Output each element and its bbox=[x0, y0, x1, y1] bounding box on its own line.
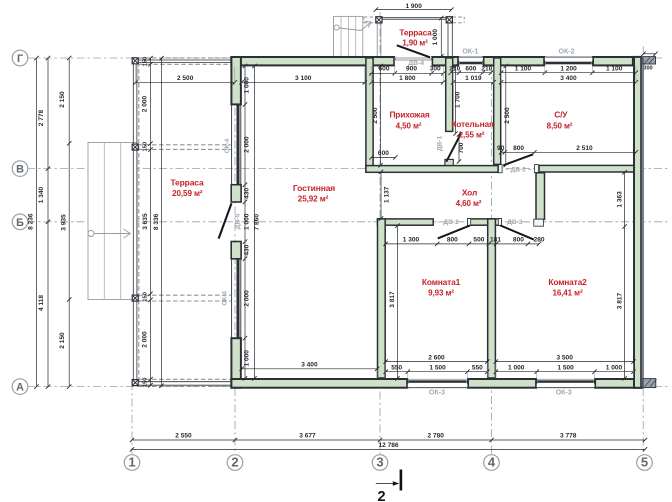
svg-text:2 150: 2 150 bbox=[59, 332, 66, 349]
svg-text:Терраса: Терраса bbox=[399, 28, 432, 38]
svg-text:4,50 м²: 4,50 м² bbox=[396, 121, 422, 130]
svg-text:2 780: 2 780 bbox=[428, 432, 445, 439]
svg-text:4: 4 bbox=[488, 455, 496, 470]
svg-text:1 363: 1 363 bbox=[616, 191, 623, 208]
svg-text:800: 800 bbox=[513, 237, 524, 244]
svg-text:1 500: 1 500 bbox=[429, 364, 446, 371]
svg-text:500: 500 bbox=[473, 237, 484, 244]
svg-text:2 500: 2 500 bbox=[177, 75, 194, 82]
svg-text:1 100: 1 100 bbox=[515, 66, 532, 73]
svg-text:20,59 м²: 20,59 м² bbox=[172, 189, 203, 198]
svg-text:8 336: 8 336 bbox=[153, 213, 160, 230]
svg-text:2 500: 2 500 bbox=[372, 107, 379, 124]
svg-text:150: 150 bbox=[143, 142, 149, 152]
svg-text:550: 550 bbox=[391, 364, 402, 371]
svg-text:3 817: 3 817 bbox=[389, 291, 396, 308]
svg-text:3 778: 3 778 bbox=[560, 432, 577, 439]
svg-text:2 778: 2 778 bbox=[38, 109, 45, 126]
svg-text:2 000: 2 000 bbox=[142, 95, 149, 112]
svg-text:2 150: 2 150 bbox=[59, 91, 66, 108]
svg-text:Терраса: Терраса bbox=[170, 177, 204, 187]
svg-text:1 700: 1 700 bbox=[454, 91, 461, 108]
svg-text:Г: Г bbox=[17, 53, 23, 65]
svg-text:1 019: 1 019 bbox=[465, 75, 482, 82]
svg-text:1 000: 1 000 bbox=[606, 364, 623, 371]
svg-text:1 000: 1 000 bbox=[244, 350, 251, 367]
svg-text:1 200: 1 200 bbox=[560, 66, 577, 73]
svg-text:12 786: 12 786 bbox=[378, 442, 398, 449]
svg-text:Комната2: Комната2 bbox=[548, 277, 587, 287]
svg-text:2 000: 2 000 bbox=[244, 290, 251, 307]
svg-text:25,92 м²: 25,92 м² bbox=[298, 195, 329, 204]
svg-text:2 550: 2 550 bbox=[175, 432, 192, 439]
svg-text:3 677: 3 677 bbox=[299, 432, 316, 439]
svg-text:150: 150 bbox=[143, 57, 149, 67]
svg-text:В: В bbox=[16, 164, 24, 176]
svg-text:3 400: 3 400 bbox=[560, 75, 577, 82]
svg-text:3 100: 3 100 bbox=[295, 75, 312, 82]
svg-text:1 340: 1 340 bbox=[38, 186, 45, 203]
svg-text:150: 150 bbox=[143, 292, 149, 302]
svg-text:550: 550 bbox=[472, 364, 483, 371]
svg-text:700: 700 bbox=[458, 142, 465, 153]
svg-text:800: 800 bbox=[513, 145, 524, 152]
svg-text:Хол: Хол bbox=[462, 187, 477, 197]
svg-text:2,55 м²: 2,55 м² bbox=[459, 130, 485, 139]
svg-text:Гостинная: Гостинная bbox=[293, 183, 335, 193]
svg-text:ДВ-3: ДВ-3 bbox=[507, 219, 523, 226]
svg-text:1 137: 1 137 bbox=[383, 186, 390, 203]
svg-text:430: 430 bbox=[244, 188, 251, 199]
svg-text:ОК-3: ОК-3 bbox=[429, 389, 445, 396]
svg-text:1 500: 1 500 bbox=[557, 364, 574, 371]
svg-text:ДВ-2: ДВ-2 bbox=[511, 167, 527, 174]
svg-text:1 900: 1 900 bbox=[405, 3, 422, 10]
svg-text:5: 5 bbox=[641, 455, 648, 470]
svg-text:1: 1 bbox=[128, 455, 135, 470]
svg-text:1 000: 1 000 bbox=[432, 29, 439, 46]
svg-text:2 500: 2 500 bbox=[504, 107, 511, 124]
svg-text:800: 800 bbox=[447, 237, 458, 244]
svg-text:ДВ-2: ДВ-2 bbox=[443, 219, 459, 226]
svg-text:280: 280 bbox=[534, 237, 545, 244]
svg-text:Котельная: Котельная bbox=[451, 119, 494, 129]
svg-text:2 000: 2 000 bbox=[142, 331, 149, 348]
svg-text:181: 181 bbox=[490, 237, 501, 244]
svg-text:3: 3 bbox=[376, 455, 383, 470]
svg-text:8 236: 8 236 bbox=[27, 213, 34, 230]
svg-text:1 000: 1 000 bbox=[244, 77, 251, 94]
svg-text:300: 300 bbox=[643, 66, 652, 72]
svg-text:1 800: 1 800 bbox=[399, 75, 416, 82]
svg-text:Комната1: Комната1 bbox=[422, 277, 461, 287]
svg-text:3 400: 3 400 bbox=[301, 361, 318, 368]
svg-text:9,93 м²: 9,93 м² bbox=[428, 288, 454, 297]
svg-text:ОК-4: ОК-4 bbox=[224, 138, 231, 153]
svg-text:150: 150 bbox=[143, 377, 149, 387]
svg-text:ОК-3: ОК-3 bbox=[556, 389, 572, 396]
svg-text:430: 430 bbox=[244, 244, 251, 255]
svg-text:4 118: 4 118 bbox=[38, 295, 45, 311]
svg-text:ДВ-1: ДВ-1 bbox=[437, 136, 444, 152]
svg-text:7 860: 7 860 bbox=[253, 214, 260, 231]
svg-text:1 100: 1 100 bbox=[606, 66, 623, 73]
svg-text:16,41 м²: 16,41 м² bbox=[552, 288, 582, 297]
svg-text:8,50 м²: 8,50 м² bbox=[547, 121, 573, 130]
svg-text:3 500: 3 500 bbox=[556, 354, 573, 361]
svg-text:900: 900 bbox=[406, 66, 417, 73]
svg-text:А: А bbox=[16, 382, 24, 394]
svg-text:2 600: 2 600 bbox=[428, 354, 445, 361]
svg-text:С/У: С/У bbox=[554, 109, 568, 119]
svg-text:1 000: 1 000 bbox=[508, 364, 525, 371]
svg-text:600: 600 bbox=[465, 66, 476, 73]
svg-text:ОК-1: ОК-1 bbox=[462, 48, 478, 55]
svg-text:ОК-2: ОК-2 bbox=[559, 48, 575, 55]
svg-text:3 635: 3 635 bbox=[142, 213, 149, 230]
svg-text:3 935: 3 935 bbox=[61, 214, 68, 231]
svg-text:2: 2 bbox=[231, 455, 238, 470]
svg-text:4,60 м²: 4,60 м² bbox=[456, 199, 482, 208]
svg-text:ДВ-5: ДВ-5 bbox=[235, 213, 242, 229]
svg-text:3 817: 3 817 bbox=[616, 292, 623, 309]
svg-text:2 000: 2 000 bbox=[244, 136, 251, 153]
svg-text:2 510: 2 510 bbox=[576, 145, 593, 152]
svg-text:Б: Б bbox=[16, 217, 24, 229]
svg-text:1,90 м²: 1,90 м² bbox=[402, 39, 428, 48]
svg-text:90: 90 bbox=[497, 145, 505, 152]
svg-text:1 300: 1 300 bbox=[403, 237, 420, 244]
svg-text:1 000: 1 000 bbox=[244, 213, 251, 230]
svg-text:Прихожая: Прихожая bbox=[389, 109, 429, 119]
svg-text:2: 2 bbox=[377, 489, 385, 502]
svg-text:ОК-4: ОК-4 bbox=[222, 291, 229, 306]
svg-text:600: 600 bbox=[378, 150, 389, 157]
